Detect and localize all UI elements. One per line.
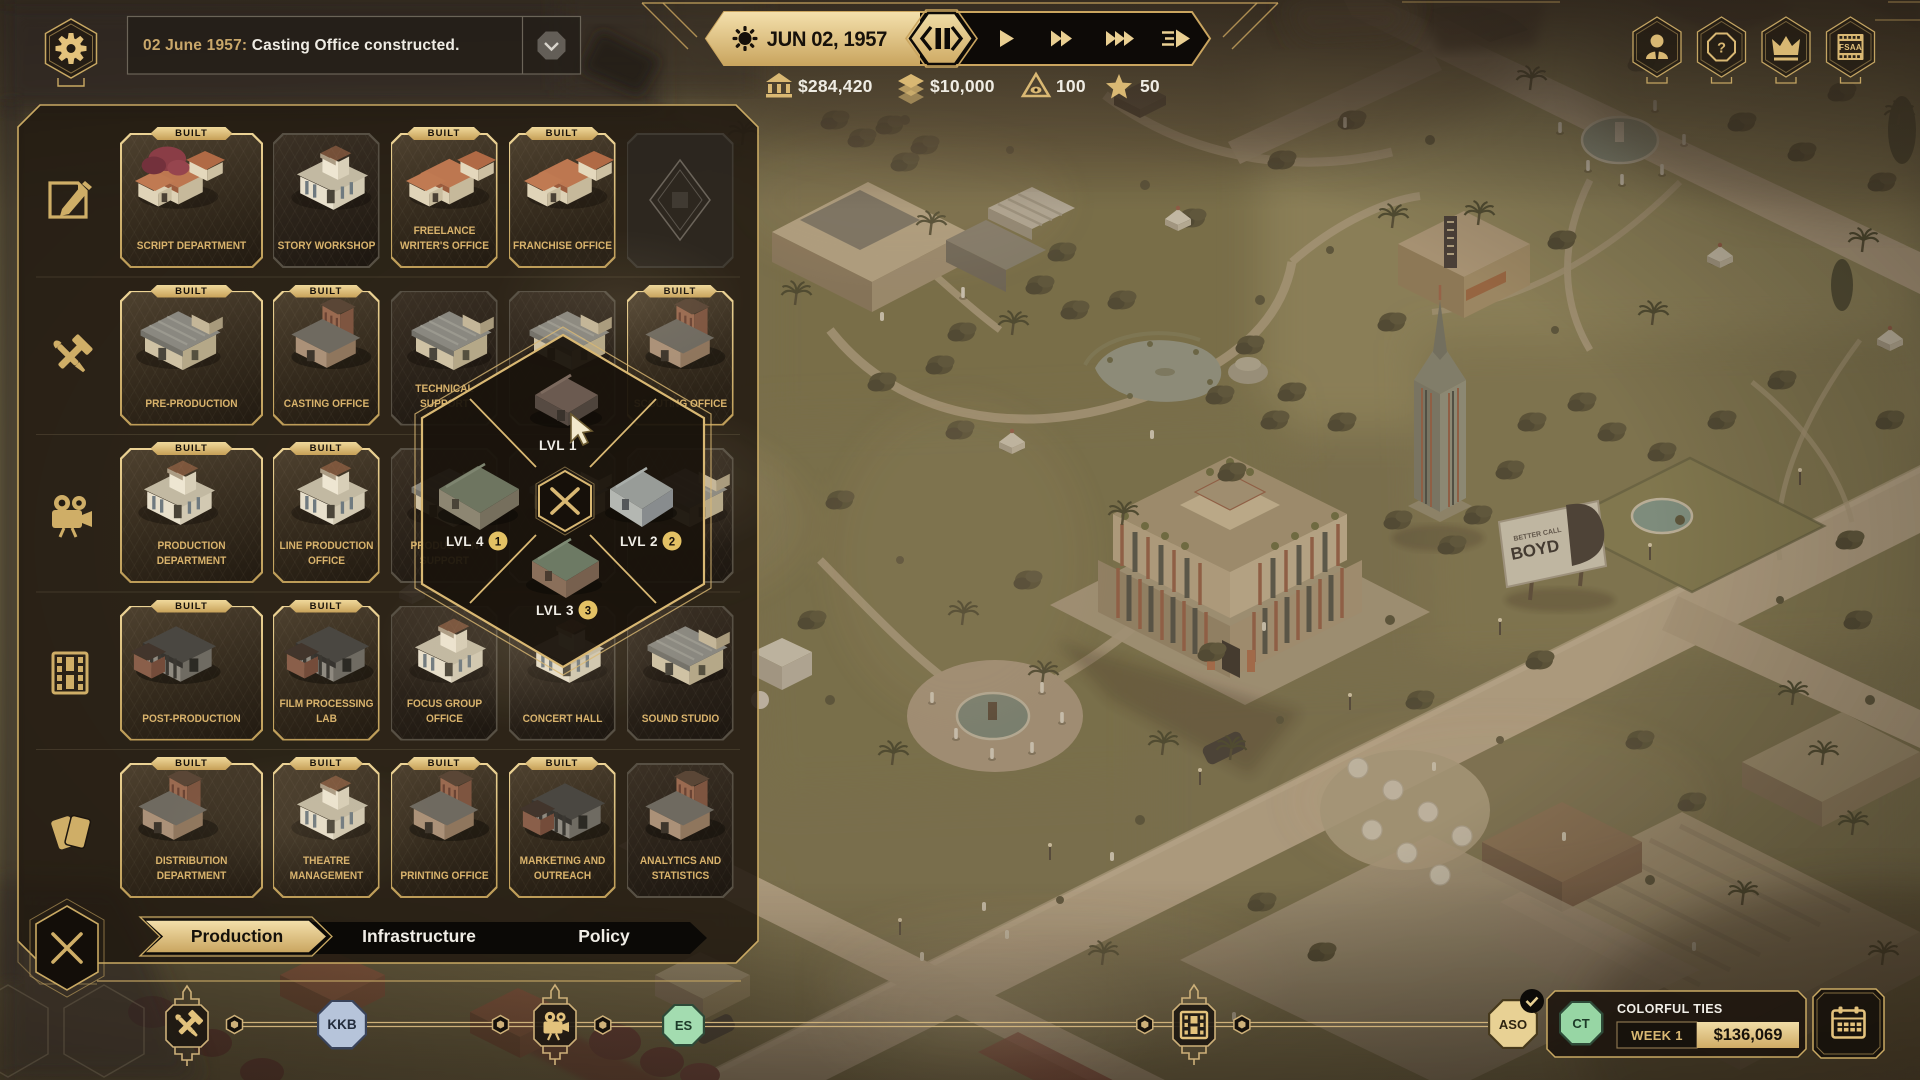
svg-text:LVL 2: LVL 2 <box>620 534 658 549</box>
svg-text:2: 2 <box>669 537 675 549</box>
svg-text:3: 3 <box>585 606 591 618</box>
svg-text:LVL 3: LVL 3 <box>536 603 574 618</box>
svg-text:LVL 4: LVL 4 <box>446 534 484 549</box>
svg-text:1: 1 <box>495 537 502 549</box>
